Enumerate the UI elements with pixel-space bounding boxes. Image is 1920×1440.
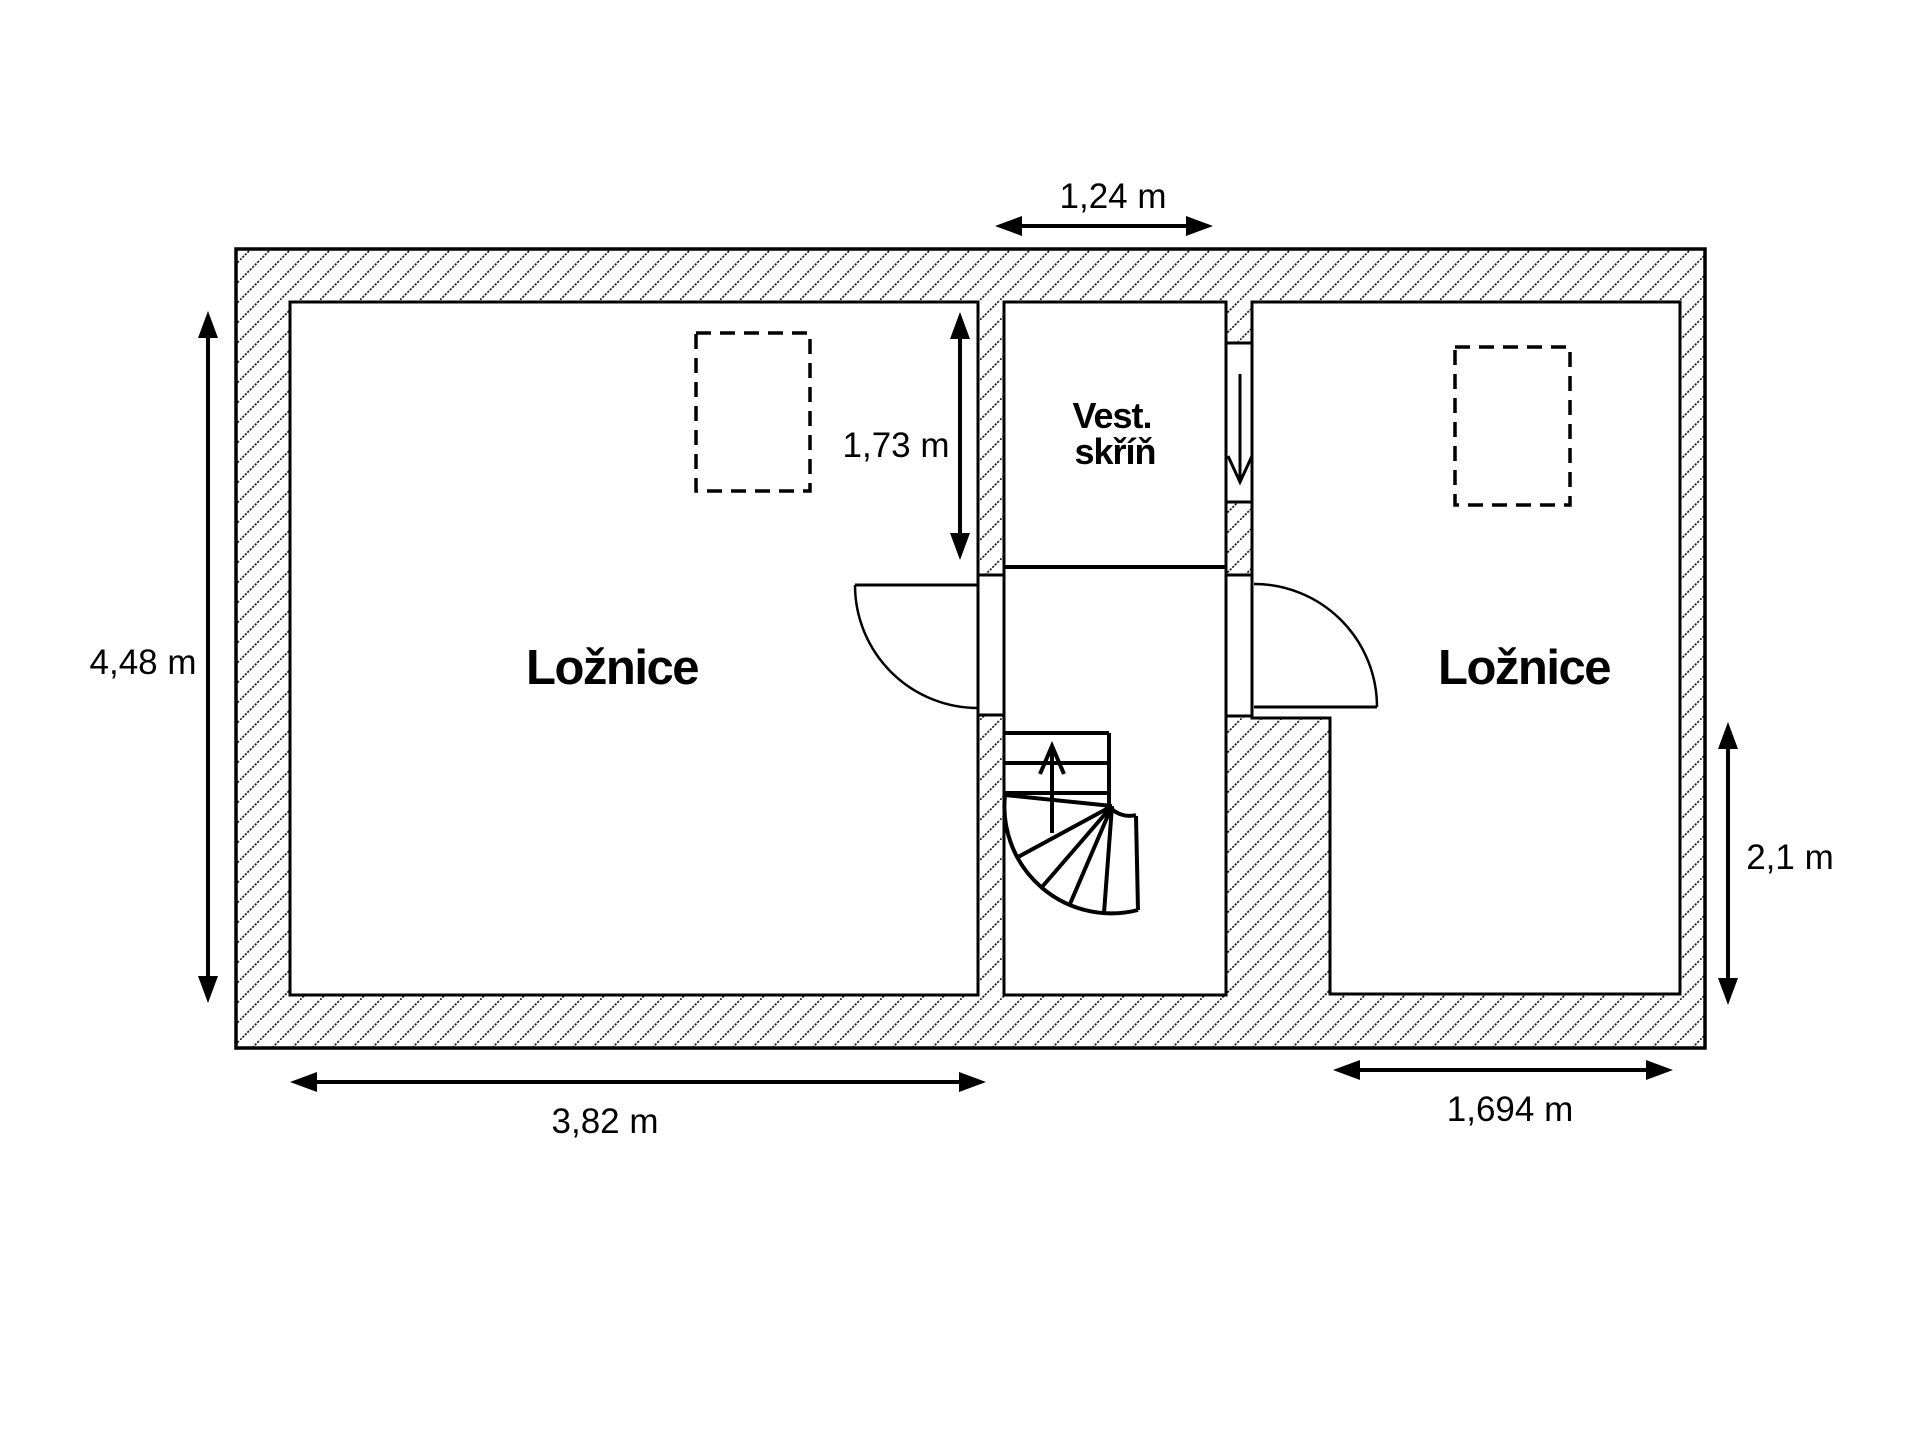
svg-text:skříň: skříň (1074, 431, 1155, 472)
svg-text:Ložnice: Ložnice (526, 641, 698, 695)
svg-text:1,694 m: 1,694 m (1447, 1090, 1573, 1129)
svg-text:Vest.: Vest. (1072, 395, 1151, 436)
svg-text:1,24 m: 1,24 m (1060, 177, 1167, 216)
svg-text:3,82 m: 3,82 m (552, 1102, 659, 1141)
svg-text:4,48 m: 4,48 m (90, 643, 197, 682)
svg-text:2,1 m: 2,1 m (1746, 838, 1834, 877)
svg-text:1,73 m: 1,73 m (843, 426, 950, 465)
svg-text:Ložnice: Ložnice (1438, 641, 1610, 695)
